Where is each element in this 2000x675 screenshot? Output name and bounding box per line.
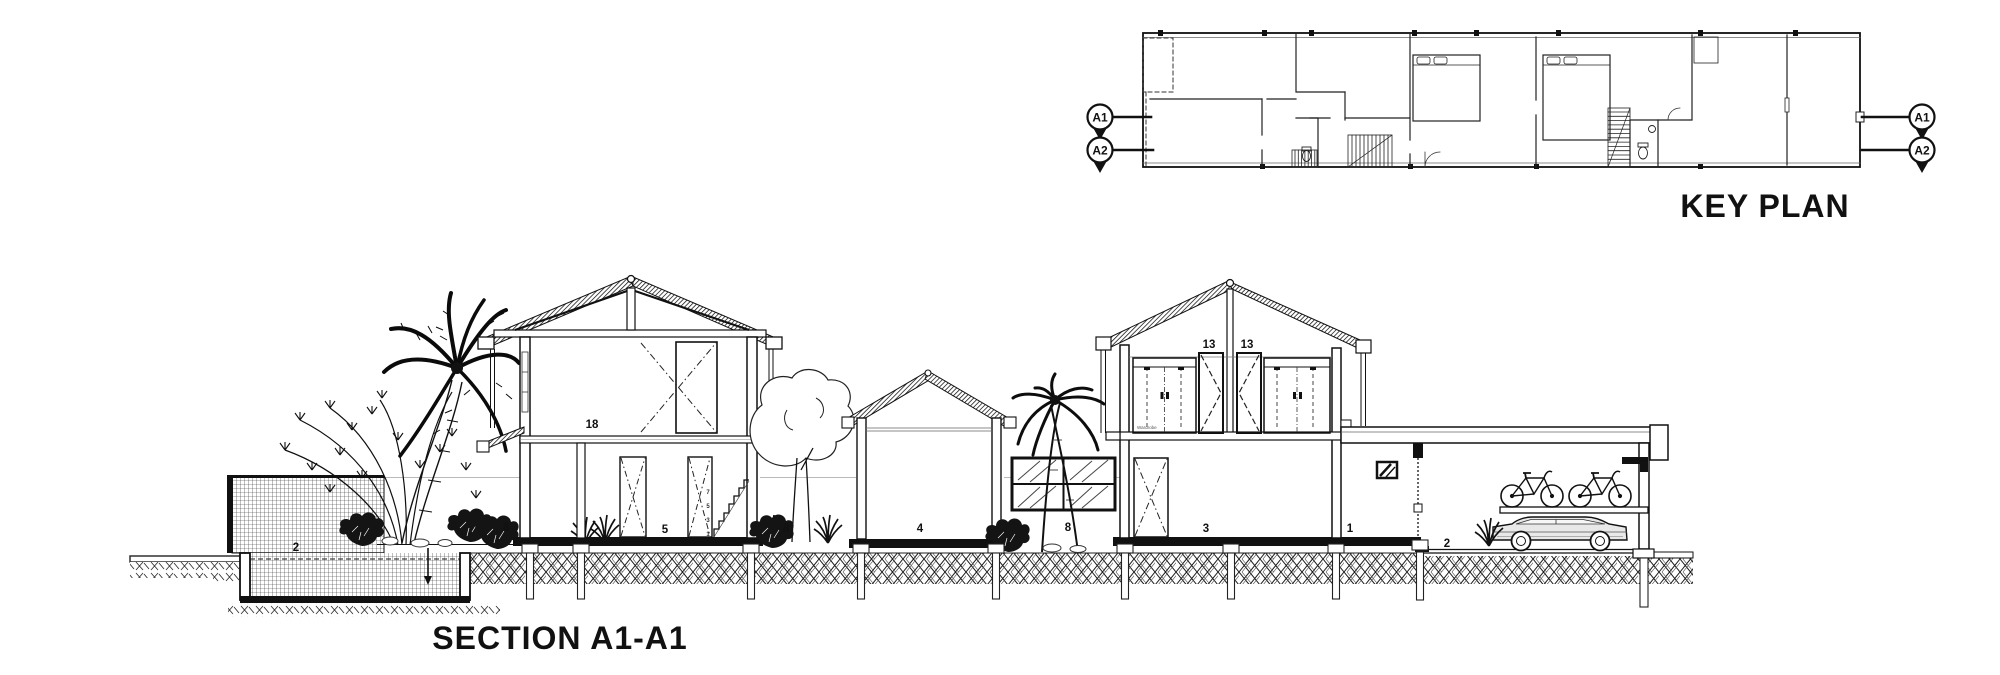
stair-riser-number: 5 xyxy=(706,504,710,510)
section-title: SECTION A1-A1 xyxy=(432,620,687,656)
wardrobe-right xyxy=(1264,358,1330,433)
bicycle xyxy=(1569,471,1631,507)
gutter xyxy=(766,337,782,349)
key-plan-outline xyxy=(1143,33,1860,167)
marker-label: A1 xyxy=(1092,111,1108,125)
plan-bed-2 xyxy=(1543,55,1610,140)
label-store-room: 1 xyxy=(1347,523,1354,535)
label-planting-left: 8 xyxy=(503,522,510,534)
roof-fascia xyxy=(1650,425,1668,460)
section-marker-a1-left: A1 xyxy=(1087,105,1113,141)
plan-bath-1 xyxy=(1302,147,1311,162)
marker-label: A2 xyxy=(1914,144,1930,158)
marker-label: A2 xyxy=(1092,144,1108,158)
stair-riser-number: 7 xyxy=(706,490,710,496)
house-2: Wardrobe 13 13 xyxy=(1096,280,1371,547)
gutter xyxy=(478,337,494,349)
label-palm-court: 8 xyxy=(1065,522,1072,534)
partition xyxy=(577,443,585,538)
wardrobe-left: Wardrobe xyxy=(1133,358,1196,433)
drawing-canvas: A1 A2 A1 A2 KEY PLAN xyxy=(0,0,2000,675)
upper-door xyxy=(676,342,717,433)
label-wardrobe-right: 13 xyxy=(1241,339,1254,351)
label-pavilion: 4 xyxy=(917,523,924,535)
section-marker-a2-left: A2 xyxy=(1087,138,1113,174)
section-a1a1: 2 xyxy=(130,276,1693,657)
upper-door-right xyxy=(1237,353,1261,433)
gutter xyxy=(842,417,854,428)
truss-king-post xyxy=(627,288,635,330)
label-upper-room: 18 xyxy=(586,419,599,431)
label-carport: 2 xyxy=(1444,538,1450,550)
gutter xyxy=(1004,417,1016,428)
label-living-room: 3 xyxy=(1203,523,1209,535)
bike-rack-shelf xyxy=(1500,507,1648,513)
rocks xyxy=(1043,544,1086,553)
truss-bottom-chord xyxy=(494,330,766,337)
rocks xyxy=(382,537,452,547)
downpipe xyxy=(1101,350,1106,433)
truss-strut xyxy=(515,291,627,330)
vent-window xyxy=(1377,462,1397,478)
stair xyxy=(714,480,749,537)
ground-hatch xyxy=(470,553,1693,584)
section-marker-a2-right: A2 xyxy=(1909,138,1935,174)
label-ground-room: 5 xyxy=(662,524,669,536)
small-plant xyxy=(1475,518,1503,546)
section-marker-a1-right: A1 xyxy=(1909,105,1935,141)
gutter xyxy=(1356,340,1371,353)
label-wardrobe-left: 13 xyxy=(1203,339,1216,351)
pavilion: 4 xyxy=(842,370,1016,548)
label-planting-court: 8 xyxy=(783,523,790,535)
wardrobe-note: Wardrobe xyxy=(1137,425,1157,430)
canopy-gutter xyxy=(477,441,489,452)
center-wall xyxy=(1227,289,1233,433)
palm-court: 8 xyxy=(985,374,1115,553)
ground-door xyxy=(688,457,712,537)
key-plan-title: KEY PLAN xyxy=(1680,188,1849,224)
downpipe xyxy=(1361,353,1366,426)
flat-roof xyxy=(1341,427,1652,443)
court-tree: 8 xyxy=(749,370,853,548)
house-1: 7 5 3 1 18 5 xyxy=(477,276,782,547)
label-water-tank: 2 xyxy=(293,542,299,554)
car xyxy=(1493,517,1627,551)
key-plan: A1 A2 A1 A2 KEY PLAN xyxy=(1087,30,1935,224)
architectural-sheet: A1 A2 A1 A2 KEY PLAN xyxy=(0,0,2000,675)
truss-strut xyxy=(635,291,749,330)
marker-label: A1 xyxy=(1914,111,1930,125)
bicycle xyxy=(1501,471,1563,507)
gutter xyxy=(1096,337,1111,350)
carport: 1 2 xyxy=(1341,420,1693,558)
grass xyxy=(814,515,842,543)
downpipe-bracket-icon xyxy=(1622,457,1648,472)
upper-door-left xyxy=(1199,353,1223,433)
stair-riser-number: 3 xyxy=(706,518,710,524)
ground-window xyxy=(1134,458,1168,537)
ground-door xyxy=(620,457,646,537)
upper-door-swing xyxy=(641,343,716,432)
plan-bed-1 xyxy=(1413,55,1480,121)
